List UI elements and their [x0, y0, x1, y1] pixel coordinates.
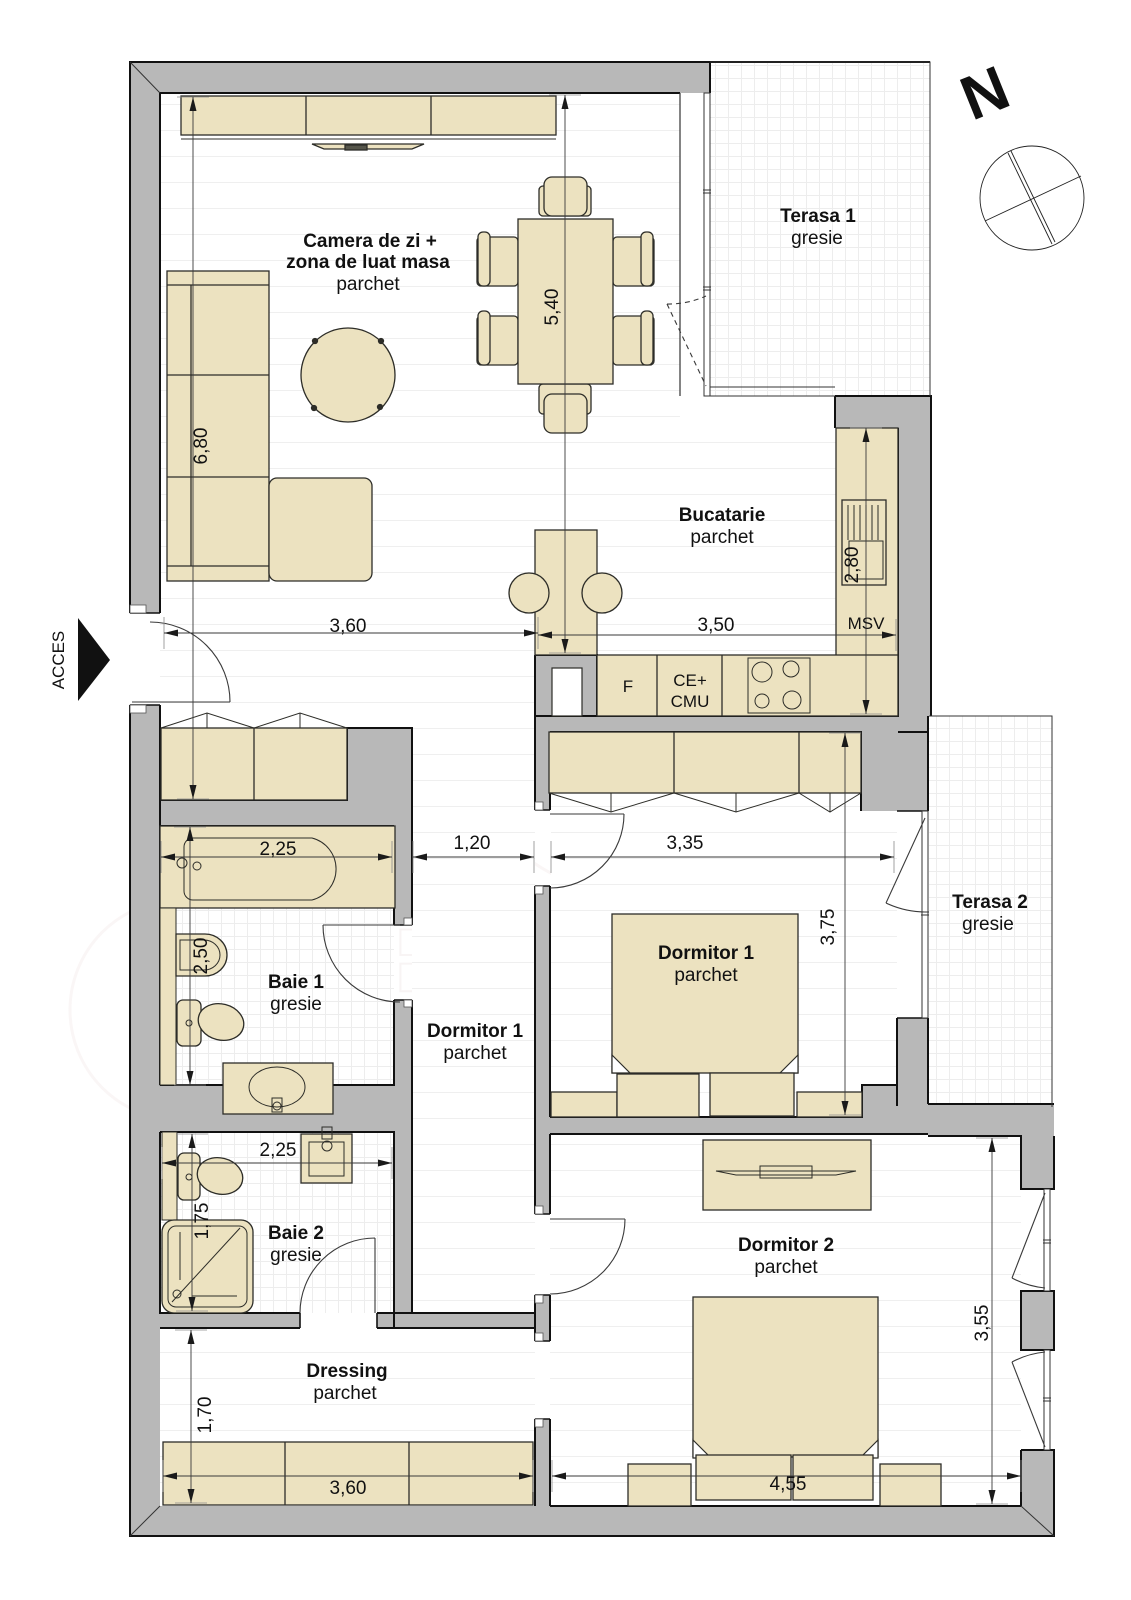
svg-text:6,80: 6,80	[191, 428, 212, 465]
svg-text:Baie 1: Baie 1	[268, 972, 324, 993]
svg-text:2,25: 2,25	[260, 1140, 297, 1161]
svg-text:Dressing: Dressing	[306, 1361, 387, 1382]
svg-text:Dormitor 2: Dormitor 2	[738, 1235, 834, 1256]
svg-text:F: F	[623, 677, 633, 696]
svg-text:CE+: CE+	[673, 671, 707, 690]
svg-text:1,75: 1,75	[192, 1203, 213, 1240]
svg-text:gresie: gresie	[270, 1245, 322, 1266]
svg-text:3,60: 3,60	[330, 616, 367, 637]
svg-text:zona de luat masa: zona de luat masa	[286, 252, 450, 273]
svg-text:parchet: parchet	[443, 1043, 507, 1064]
svg-text:parchet: parchet	[336, 274, 400, 295]
svg-text:gresie: gresie	[791, 228, 843, 249]
svg-text:parchet: parchet	[754, 1257, 818, 1278]
svg-text:1,70: 1,70	[195, 1397, 216, 1434]
svg-text:1,20: 1,20	[454, 833, 491, 854]
svg-text:ACCES: ACCES	[49, 631, 68, 690]
svg-text:CMU: CMU	[671, 692, 710, 711]
svg-text:3,50: 3,50	[698, 615, 735, 636]
svg-text:3,35: 3,35	[667, 833, 704, 854]
svg-text:Camera de zi +: Camera de zi +	[303, 231, 437, 252]
svg-text:Dormitor 1: Dormitor 1	[658, 943, 755, 964]
svg-text:Bucatarie: Bucatarie	[679, 505, 766, 526]
svg-text:parchet: parchet	[674, 965, 738, 986]
svg-text:2,25: 2,25	[260, 839, 297, 860]
svg-text:Dormitor 1: Dormitor 1	[427, 1021, 524, 1042]
svg-text:Terasa 2: Terasa 2	[952, 892, 1028, 913]
svg-text:gresie: gresie	[270, 994, 322, 1015]
svg-text:5,40: 5,40	[542, 289, 563, 326]
svg-text:4,55: 4,55	[770, 1474, 807, 1495]
svg-text:Terasa 1: Terasa 1	[780, 206, 856, 227]
svg-text:Baie 2: Baie 2	[268, 1223, 324, 1244]
svg-text:3,60: 3,60	[330, 1478, 367, 1499]
svg-text:3,75: 3,75	[818, 909, 839, 946]
svg-text:3,55: 3,55	[972, 1305, 993, 1342]
svg-text:parchet: parchet	[690, 527, 754, 548]
svg-text:parchet: parchet	[313, 1383, 377, 1404]
svg-text:2,80: 2,80	[842, 547, 863, 584]
svg-text:MSV: MSV	[848, 614, 886, 633]
svg-text:2,50: 2,50	[191, 938, 212, 975]
svg-text:gresie: gresie	[962, 914, 1014, 935]
